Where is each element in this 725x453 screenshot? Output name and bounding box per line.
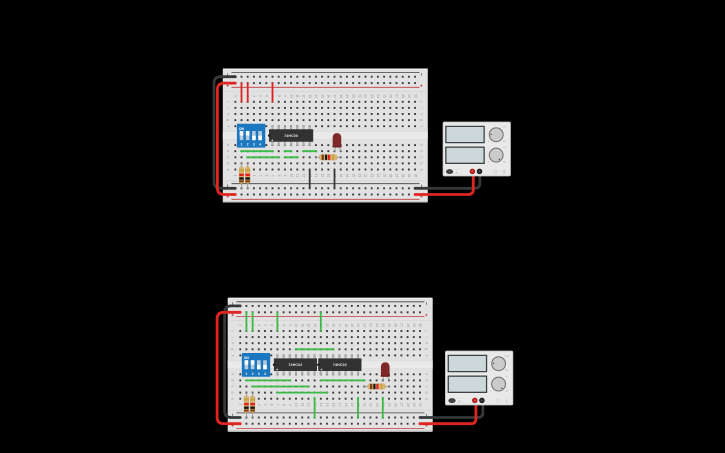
svg-text:9: 9 bbox=[288, 404, 292, 406]
svg-text:25: 25 bbox=[387, 403, 391, 407]
svg-text:b: b bbox=[231, 392, 235, 394]
svg-text:15: 15 bbox=[320, 94, 324, 98]
svg-text:2: 2 bbox=[247, 143, 249, 147]
svg-text:23: 23 bbox=[375, 323, 379, 327]
svg-text:11: 11 bbox=[300, 324, 304, 328]
svg-text:29: 29 bbox=[412, 403, 416, 407]
svg-text:3: 3 bbox=[253, 143, 255, 147]
svg-text:20: 20 bbox=[351, 94, 355, 98]
svg-text:f: f bbox=[231, 355, 235, 356]
svg-text:e: e bbox=[424, 373, 428, 375]
svg-text:29: 29 bbox=[407, 94, 411, 98]
svg-text:27: 27 bbox=[395, 94, 399, 98]
svg-text:15: 15 bbox=[325, 323, 329, 327]
svg-text:30: 30 bbox=[413, 174, 417, 178]
svg-text:17: 17 bbox=[333, 94, 337, 98]
svg-text:0: 0 bbox=[488, 162, 489, 164]
svg-text:21: 21 bbox=[362, 403, 366, 407]
svg-text:11: 11 bbox=[295, 174, 299, 178]
svg-text:10: 10 bbox=[294, 403, 298, 407]
svg-text:6: 6 bbox=[269, 404, 273, 406]
svg-text:j: j bbox=[419, 100, 423, 102]
svg-text:30: 30 bbox=[418, 403, 422, 407]
svg-text:22: 22 bbox=[364, 94, 368, 98]
svg-text:j: j bbox=[424, 330, 428, 332]
svg-text:b: b bbox=[226, 162, 230, 164]
svg-text:26: 26 bbox=[393, 323, 397, 327]
svg-text:1: 1 bbox=[238, 404, 242, 406]
svg-text:9: 9 bbox=[288, 324, 292, 326]
svg-text:2: 2 bbox=[252, 372, 254, 376]
svg-text:d: d bbox=[424, 379, 428, 381]
svg-text:d: d bbox=[226, 150, 230, 152]
svg-text:18: 18 bbox=[339, 174, 343, 178]
svg-text:d: d bbox=[419, 150, 423, 152]
svg-text:29: 29 bbox=[407, 174, 411, 178]
svg-text:1: 1 bbox=[246, 372, 248, 376]
svg-text:17: 17 bbox=[338, 403, 342, 407]
svg-text:OFF: OFF bbox=[458, 401, 461, 403]
svg-text:1: 1 bbox=[238, 324, 242, 326]
svg-text:f: f bbox=[226, 126, 230, 127]
svg-text:h: h bbox=[424, 342, 428, 344]
svg-text:4: 4 bbox=[264, 372, 266, 376]
svg-text:a: a bbox=[226, 169, 230, 171]
svg-text:5: 5 bbox=[258, 175, 262, 177]
svg-text:14: 14 bbox=[314, 174, 318, 178]
svg-text:13: 13 bbox=[308, 94, 312, 98]
svg-text:25: 25 bbox=[382, 94, 386, 98]
svg-text:5: 5 bbox=[258, 95, 262, 97]
svg-text:11: 11 bbox=[295, 94, 299, 98]
svg-text:21: 21 bbox=[357, 174, 361, 178]
svg-text:28: 28 bbox=[406, 323, 410, 327]
svg-text:16: 16 bbox=[326, 94, 330, 98]
svg-text:g: g bbox=[419, 119, 423, 121]
svg-text:28: 28 bbox=[401, 94, 405, 98]
svg-text:g: g bbox=[231, 348, 235, 350]
svg-text:12: 12 bbox=[302, 94, 306, 98]
svg-text:20: 20 bbox=[356, 323, 360, 327]
svg-text:18: 18 bbox=[344, 403, 348, 407]
svg-text:21: 21 bbox=[357, 94, 361, 98]
svg-text:18: 18 bbox=[344, 323, 348, 327]
svg-text:ON: ON bbox=[239, 127, 245, 131]
svg-text:14: 14 bbox=[314, 94, 318, 98]
svg-text:8: 8 bbox=[277, 175, 281, 177]
svg-text:a: a bbox=[231, 398, 235, 400]
svg-text:28: 28 bbox=[401, 174, 405, 178]
svg-text:21: 21 bbox=[362, 323, 366, 327]
svg-text:a: a bbox=[424, 398, 428, 400]
svg-text:17: 17 bbox=[338, 323, 342, 327]
svg-text:25: 25 bbox=[382, 174, 386, 178]
svg-text:18: 18 bbox=[339, 94, 343, 98]
svg-text:24: 24 bbox=[376, 94, 380, 98]
svg-text:f: f bbox=[419, 126, 423, 127]
svg-text:23: 23 bbox=[375, 403, 379, 407]
svg-text:19: 19 bbox=[350, 403, 354, 407]
svg-text:OFF: OFF bbox=[455, 172, 458, 174]
svg-text:0-1: 0-1 bbox=[506, 376, 509, 378]
svg-text:j: j bbox=[226, 100, 230, 102]
svg-text:12: 12 bbox=[307, 323, 311, 327]
svg-text:7: 7 bbox=[271, 175, 275, 177]
svg-text:0: 0 bbox=[491, 391, 492, 393]
svg-text:1: 1 bbox=[241, 143, 243, 147]
svg-text:16: 16 bbox=[331, 403, 335, 407]
svg-text:27: 27 bbox=[400, 403, 404, 407]
svg-text:1: 1 bbox=[233, 175, 237, 177]
svg-text:30: 30 bbox=[413, 94, 417, 98]
svg-text:19: 19 bbox=[345, 174, 349, 178]
svg-text:30: 30 bbox=[418, 323, 422, 327]
svg-text:22: 22 bbox=[364, 174, 368, 178]
svg-text:24: 24 bbox=[381, 323, 385, 327]
svg-text:22: 22 bbox=[369, 403, 373, 407]
svg-text:74HC02: 74HC02 bbox=[288, 363, 302, 367]
svg-text:0-1: 0-1 bbox=[503, 147, 506, 149]
svg-text:14: 14 bbox=[319, 403, 323, 407]
svg-text:74HC00: 74HC00 bbox=[284, 134, 298, 138]
svg-text:6: 6 bbox=[264, 175, 268, 177]
svg-text:e: e bbox=[226, 144, 230, 146]
svg-text:19: 19 bbox=[345, 94, 349, 98]
svg-text:ON: ON bbox=[244, 356, 250, 360]
svg-text:0-30: 0-30 bbox=[505, 355, 509, 357]
svg-text:d: d bbox=[231, 379, 235, 381]
svg-text:h: h bbox=[231, 342, 235, 344]
svg-text:10: 10 bbox=[289, 94, 293, 98]
svg-text:12: 12 bbox=[302, 174, 306, 178]
svg-text:22: 22 bbox=[369, 323, 373, 327]
svg-text:4: 4 bbox=[252, 175, 256, 177]
svg-text:10: 10 bbox=[289, 174, 293, 178]
svg-text:24: 24 bbox=[376, 174, 380, 178]
svg-text:5: 5 bbox=[263, 404, 267, 406]
svg-text:28: 28 bbox=[406, 403, 410, 407]
svg-text:8: 8 bbox=[277, 95, 281, 97]
svg-text:a: a bbox=[419, 169, 423, 171]
svg-text:19: 19 bbox=[350, 323, 354, 327]
svg-text:g: g bbox=[226, 119, 230, 121]
svg-text:23: 23 bbox=[370, 94, 374, 98]
svg-text:23: 23 bbox=[370, 174, 374, 178]
svg-text:4: 4 bbox=[257, 404, 261, 406]
svg-text:27: 27 bbox=[400, 323, 404, 327]
svg-text:20: 20 bbox=[351, 174, 355, 178]
svg-text:0: 0 bbox=[488, 141, 489, 143]
svg-text:h: h bbox=[419, 113, 423, 115]
svg-text:b: b bbox=[424, 392, 428, 394]
svg-text:7: 7 bbox=[276, 404, 280, 406]
svg-text:16: 16 bbox=[326, 174, 330, 178]
svg-text:3: 3 bbox=[258, 372, 260, 376]
svg-text:11: 11 bbox=[300, 403, 304, 407]
svg-text:15: 15 bbox=[325, 403, 329, 407]
svg-text:8: 8 bbox=[282, 324, 286, 326]
svg-text:26: 26 bbox=[388, 174, 392, 178]
svg-text:0-30: 0-30 bbox=[503, 126, 507, 128]
svg-text:29: 29 bbox=[412, 323, 416, 327]
svg-text:74HC02: 74HC02 bbox=[333, 363, 347, 367]
svg-text:26: 26 bbox=[388, 94, 392, 98]
svg-text:e: e bbox=[231, 373, 235, 375]
svg-text:26: 26 bbox=[393, 403, 397, 407]
svg-text:1: 1 bbox=[233, 95, 237, 97]
svg-text:g: g bbox=[424, 348, 428, 350]
svg-text:f: f bbox=[424, 355, 428, 356]
svg-text:6: 6 bbox=[264, 95, 268, 97]
svg-text:5: 5 bbox=[263, 324, 267, 326]
svg-text:j: j bbox=[231, 330, 235, 332]
svg-text:b: b bbox=[419, 162, 423, 164]
svg-text:16: 16 bbox=[331, 323, 335, 327]
svg-text:6: 6 bbox=[269, 324, 273, 326]
svg-text:h: h bbox=[226, 113, 230, 115]
svg-text:10: 10 bbox=[294, 323, 298, 327]
svg-text:4: 4 bbox=[252, 95, 256, 97]
svg-text:8: 8 bbox=[282, 404, 286, 406]
svg-text:4: 4 bbox=[259, 143, 261, 147]
svg-text:13: 13 bbox=[313, 323, 317, 327]
svg-text:27: 27 bbox=[395, 174, 399, 178]
svg-text:12: 12 bbox=[307, 403, 311, 407]
svg-text:15: 15 bbox=[320, 174, 324, 178]
svg-text:e: e bbox=[419, 144, 423, 146]
svg-text:4: 4 bbox=[257, 324, 261, 326]
svg-text:25: 25 bbox=[387, 323, 391, 327]
svg-text:9: 9 bbox=[283, 95, 287, 97]
svg-text:9: 9 bbox=[283, 175, 287, 177]
svg-text:0: 0 bbox=[491, 370, 492, 372]
